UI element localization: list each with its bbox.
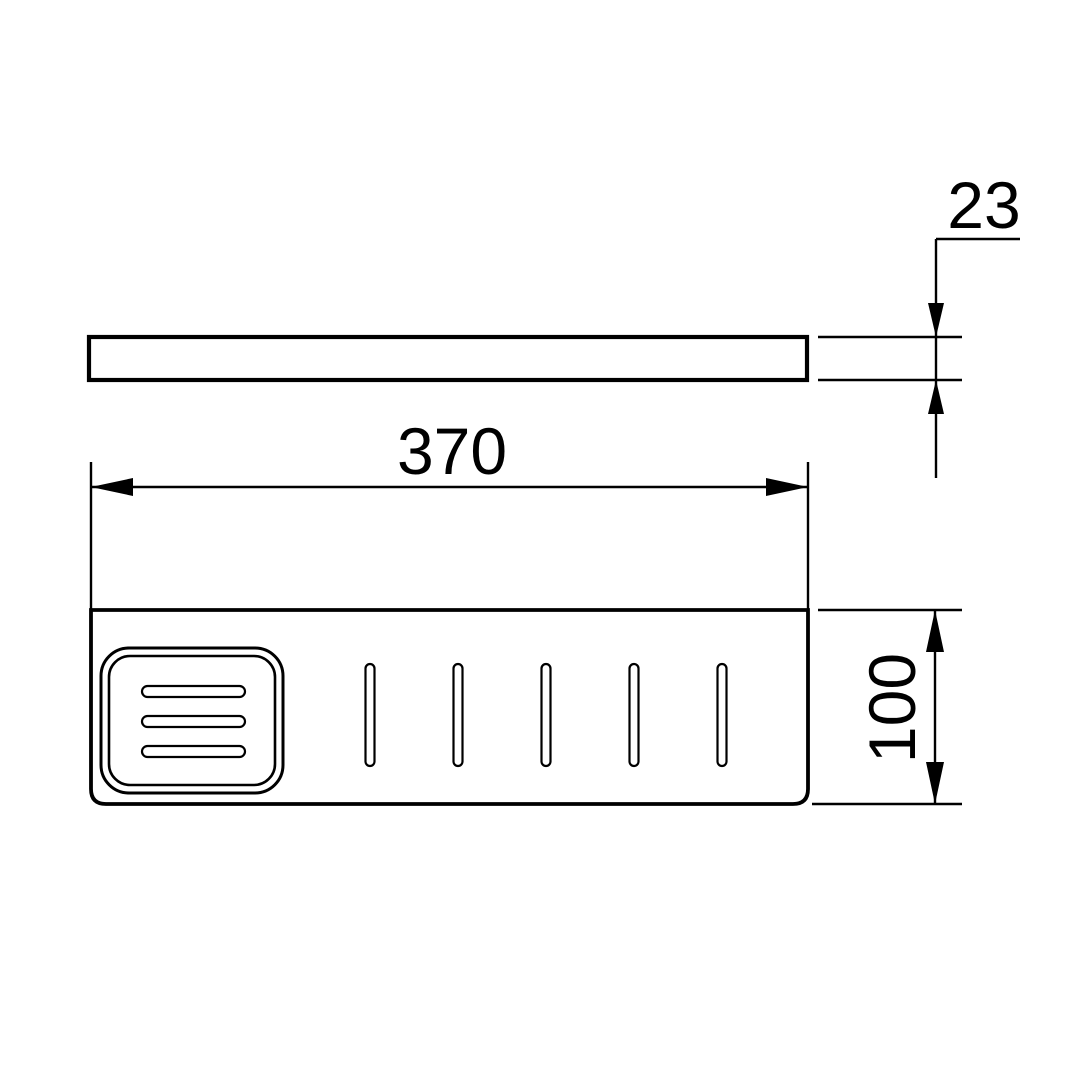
shelf-dimension-drawing: 23 370 100 [0,0,1080,1080]
dim-thickness-arrow-up-icon [928,380,944,414]
top-view-body [91,610,808,804]
dim-width-arrow-right-icon [766,478,808,496]
dim-width-arrow-left-icon [91,478,133,496]
dim-width-label: 370 [397,414,507,488]
technical-drawing-canvas: 23 370 100 [0,0,1080,1080]
side-view-bar [89,337,807,380]
dim-depth-label: 100 [855,653,929,763]
dim-thickness-label: 23 [947,168,1020,242]
dim-thickness-arrow-down-icon [928,303,944,337]
dim-depth-arrow-up-icon [926,610,944,652]
dim-depth-arrow-down-icon [926,762,944,804]
dim-thickness-lines [818,239,1020,478]
